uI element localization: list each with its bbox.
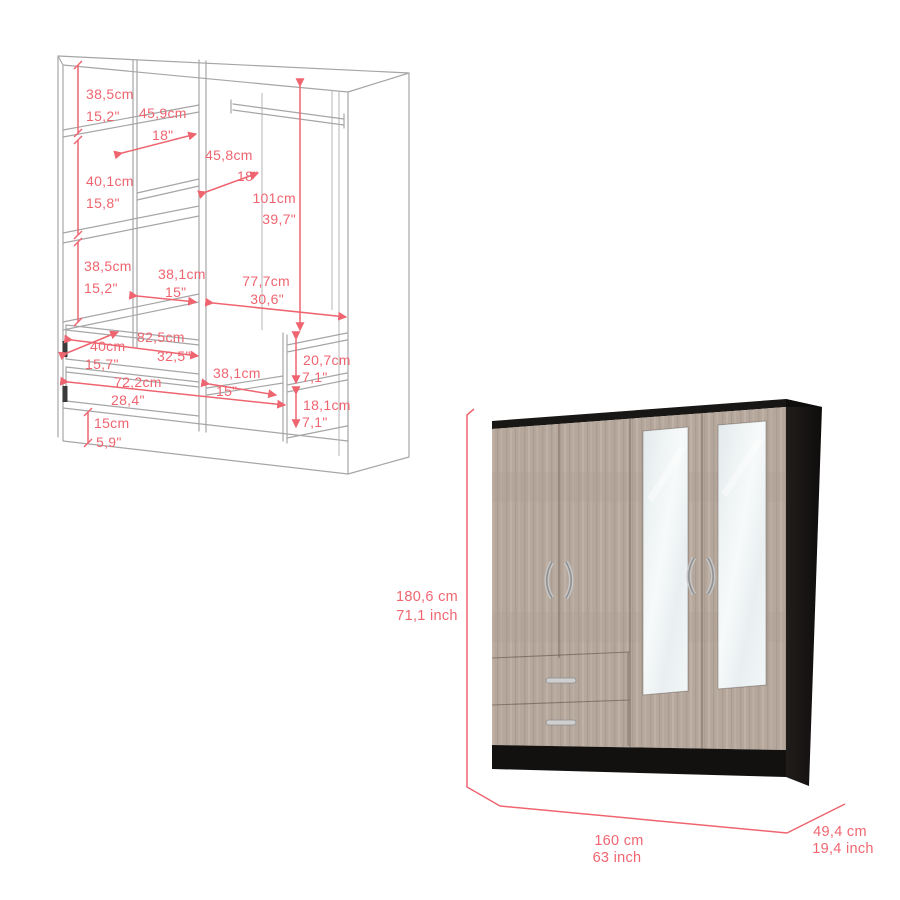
dim-label: 40,1cm	[86, 173, 134, 189]
height-label: 180,6 cm	[396, 589, 458, 605]
shelf-second	[63, 206, 199, 243]
dim-label: 77,7cm	[242, 273, 290, 289]
hanging-rod	[231, 100, 344, 128]
drawer-edge-mark	[63, 386, 68, 402]
height-label: 71,1 inch	[396, 608, 458, 624]
technical-drawing: 38,5cm 15,2" 45,9cm 18" 45,8cm 18" 40,1c…	[58, 56, 409, 474]
dim-label: 32,5"	[157, 348, 191, 364]
dim-label: 15,7"	[85, 356, 119, 372]
dim-label: 38,1cm	[213, 365, 261, 381]
dim-label: 38,5cm	[84, 258, 132, 274]
dim-label: 20,7cm	[303, 352, 351, 368]
dim-label: 38,5cm	[86, 86, 134, 102]
dim-label: 40cm	[90, 338, 125, 354]
shelf-middle	[137, 179, 199, 200]
dim-label: 15cm	[94, 415, 129, 431]
width-label: 63 inch	[593, 850, 642, 866]
dim-label: 45,8cm	[205, 147, 253, 163]
dim-label: 15"	[216, 383, 237, 399]
dimension-annotations: 38,5cm 15,2" 45,9cm 18" 45,8cm 18" 40,1c…	[67, 61, 351, 450]
dim-label: 72,2cm	[114, 374, 162, 390]
width-label: 160 cm	[594, 833, 643, 849]
dim-label: 5,9"	[96, 434, 122, 450]
dim-label: 15,2"	[84, 280, 118, 296]
width-dim-line	[500, 806, 787, 833]
dim-line-bottom-drawer-width	[68, 382, 285, 405]
dim-label: 82,5cm	[137, 329, 185, 345]
dim-label: 30,6"	[250, 291, 284, 307]
side-panel	[786, 399, 822, 786]
dim-label: 45,9cm	[139, 105, 187, 121]
depth-label: 49,4 cm	[813, 824, 867, 840]
dim-label: 18,1cm	[303, 397, 351, 413]
left-divider	[133, 60, 137, 347]
plinth	[492, 745, 786, 777]
dim-label: 101cm	[252, 190, 296, 206]
product-dimension-sheet: 38,5cm 15,2" 45,9cm 18" 45,8cm 18" 40,1c…	[0, 0, 900, 900]
dim-label: 28,4"	[111, 392, 145, 408]
dim-label: 18"	[237, 168, 258, 184]
mirror-left	[643, 427, 688, 695]
center-divider	[199, 60, 206, 432]
dim-label: 38,1cm	[158, 266, 206, 282]
dim-label: 15"	[165, 284, 186, 300]
dim-label: 18"	[152, 127, 173, 143]
top-face	[786, 399, 822, 407]
product-render: 180,6 cm 71,1 inch 160 cm 63 inch 49,4 c…	[396, 399, 874, 866]
dim-label: 39,7"	[262, 211, 296, 227]
dim-label: 7,1"	[302, 414, 328, 430]
dim-label: 7,1"	[302, 369, 328, 385]
depth-label: 19,4 inch	[812, 841, 874, 857]
drawer-edge-mark	[63, 341, 68, 357]
dim-label: 15,2"	[86, 108, 120, 124]
dim-label: 15,8"	[86, 195, 120, 211]
